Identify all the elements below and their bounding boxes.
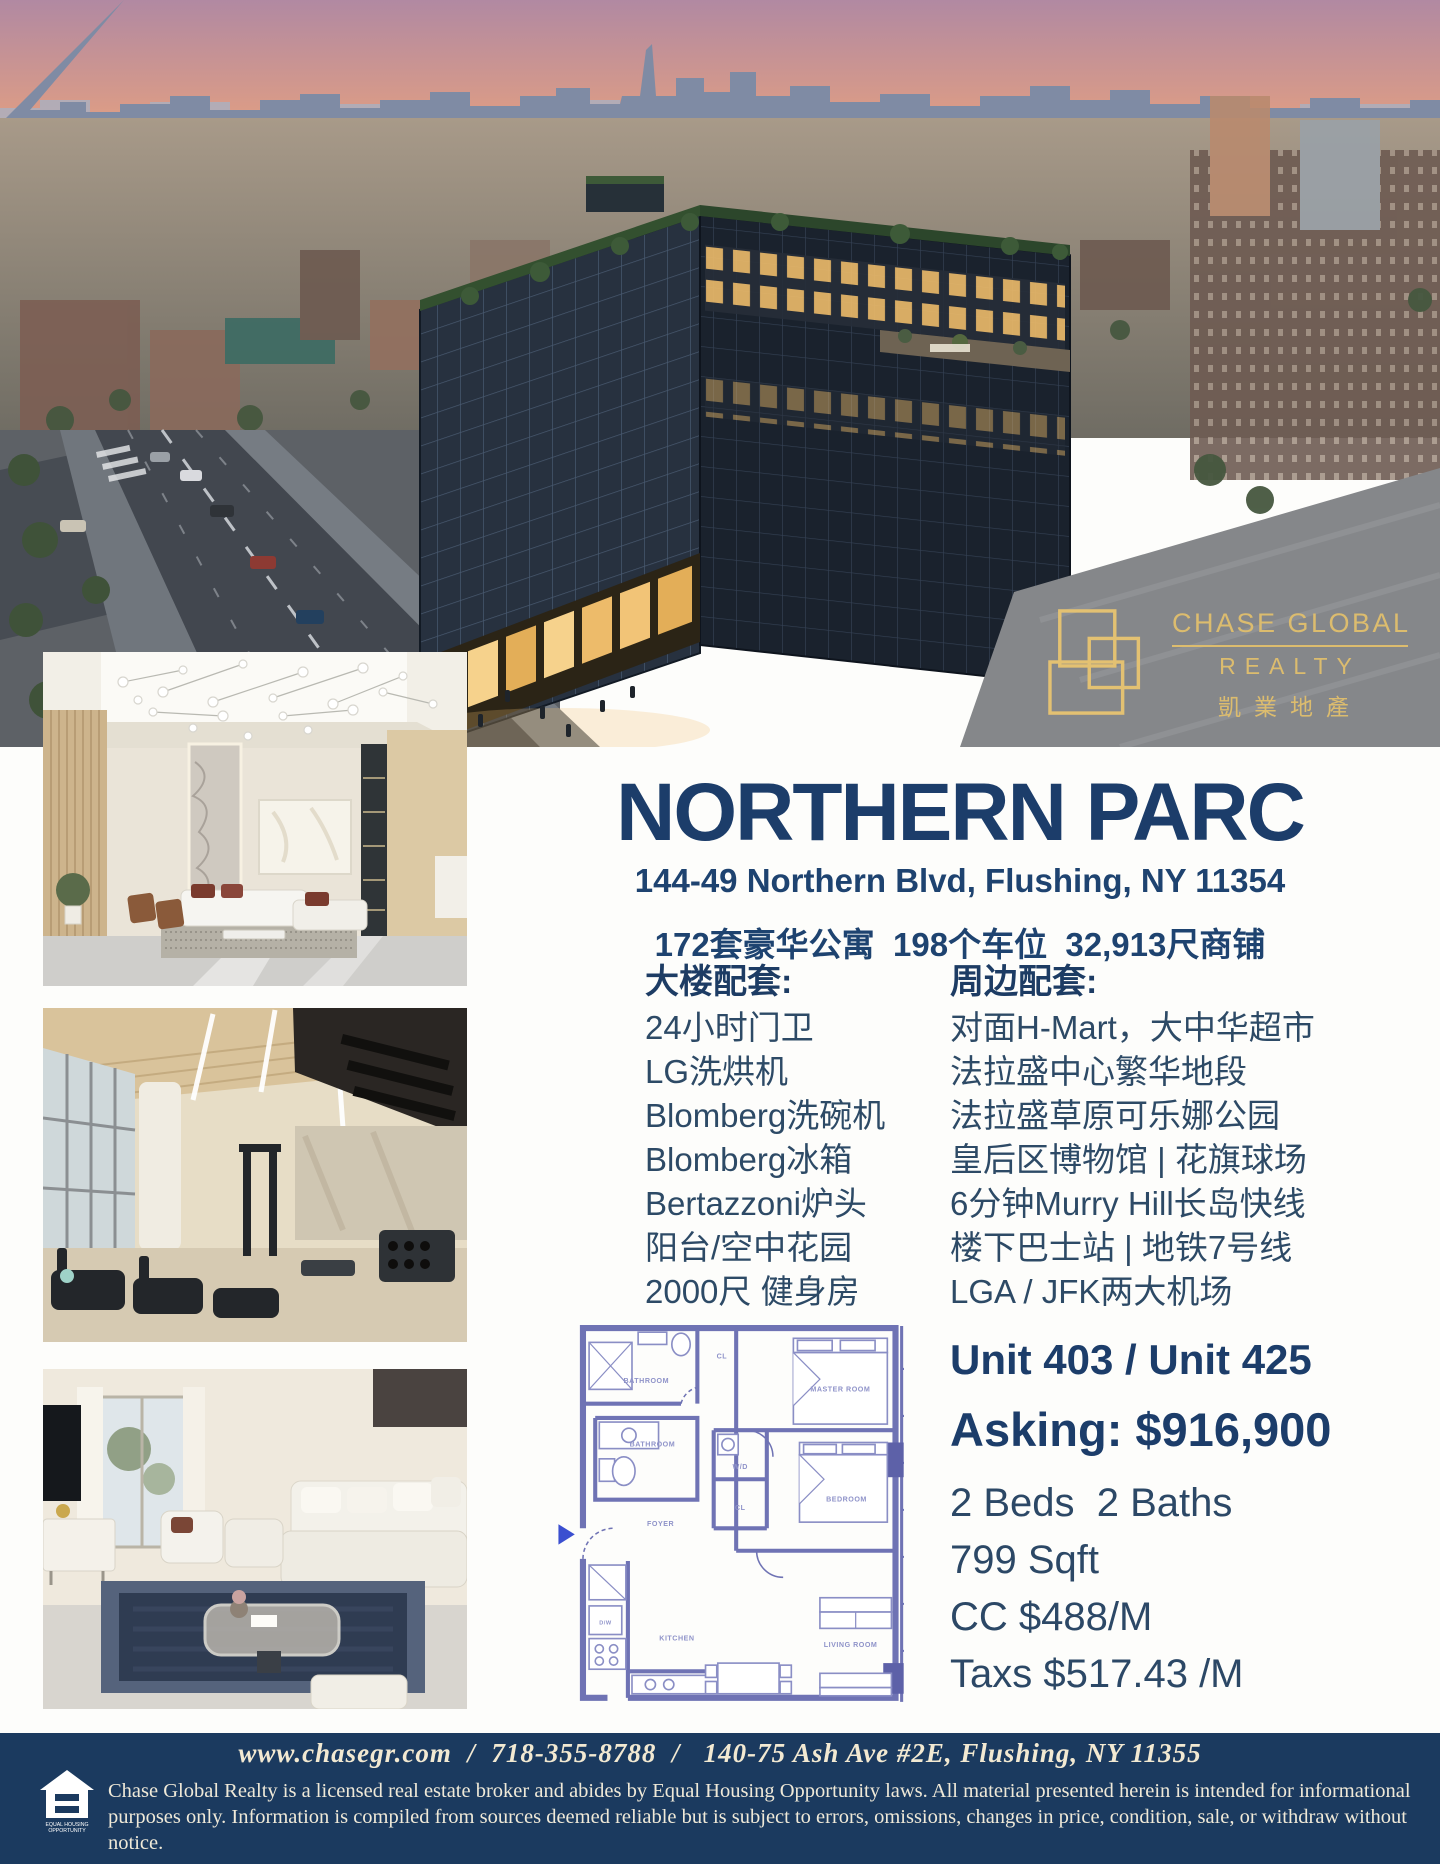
amenity-item: LGA / JFK两大机场 [950, 1270, 1420, 1314]
amenity-item: 楼下巴士站 | 地铁7号线 [950, 1226, 1420, 1270]
logo-name: CHASE GLOBAL [1172, 608, 1408, 647]
room-label: LIVING ROOM [824, 1641, 878, 1649]
real-estate-flyer: CHASE GLOBAL REALTY 凱業地產 [0, 0, 1440, 1864]
room-label: BATHROOM [624, 1377, 670, 1385]
living-room-photo [43, 1369, 467, 1709]
sofa [281, 1477, 467, 1587]
common-charges: CC $488/M [950, 1595, 1420, 1640]
taxes: Taxs $517.43 /M [950, 1652, 1420, 1697]
amenity-item: 对面H-Mart，大中华超市 [950, 1006, 1420, 1050]
amenity-item: 皇后区博物馆 | 花旗球场 [950, 1138, 1420, 1182]
room-label: CL [717, 1353, 728, 1361]
equal-housing-icon: EQUAL HOUSING OPPORTUNITY [36, 1768, 98, 1834]
area-amenities-heading: 周边配套: [950, 960, 1420, 1004]
listing-stats: 172套豪华公寓 198个车位 32,913尺商铺 [500, 918, 1420, 966]
area-amenities: 周边配套: 对面H-Mart，大中华超市 法拉盛中心繁华地段 法拉盛草原可乐娜公… [950, 960, 1420, 1314]
chase-global-logo: CHASE GLOBAL REALTY 凱業地產 [1048, 608, 1408, 738]
room-label: BEDROOM [826, 1496, 867, 1504]
beds-baths: 2 Beds 2 Baths [950, 1481, 1420, 1526]
listing-title: NORTHERN PARC [500, 766, 1420, 860]
logo-chinese-name: 凱業地產 [1172, 688, 1408, 722]
gym-photo [43, 1008, 467, 1342]
room-label: W/D [733, 1463, 748, 1471]
unit-numbers: Unit 403 / Unit 425 [950, 1336, 1420, 1384]
asking-price: Asking: $916,900 [950, 1402, 1420, 1457]
room-label: KITCHEN [659, 1635, 694, 1643]
listing-address: 144-49 Northern Blvd, Flushing, NY 11354 [500, 862, 1420, 900]
room-label: BATHROOM [630, 1441, 676, 1449]
footer-disclaimer: Chase Global Realty is a licensed real e… [108, 1778, 1418, 1856]
room-label: MASTER ROOM [810, 1385, 870, 1393]
logo-squares-icon [1048, 608, 1158, 716]
unit-info: Unit 403 / Unit 425 Asking: $916,900 2 B… [950, 1336, 1420, 1697]
floor-plan: BATHROOM MASTER ROOM CL BATHROOM W/D CL … [552, 1324, 904, 1706]
logo-realty: REALTY [1172, 653, 1408, 680]
armchairs [161, 1511, 283, 1567]
equal-housing-label-2: OPPORTUNITY [48, 1828, 86, 1834]
square-footage: 799 Sqft [950, 1538, 1420, 1583]
amenity-item: 法拉盛中心繁华地段 [950, 1050, 1420, 1094]
lobby-photo [43, 652, 467, 986]
room-label: FOYER [647, 1520, 674, 1528]
room-label: D/W [599, 1620, 612, 1626]
amenity-item: 6分钟Murry Hill长岛快线 [950, 1182, 1420, 1226]
room-label: CL [735, 1504, 746, 1512]
amenity-item: 法拉盛草原可乐娜公园 [950, 1094, 1420, 1138]
footer-contact-line[interactable]: www.chasegr.com / 718-355-8788 / 140-75 … [0, 1738, 1440, 1769]
